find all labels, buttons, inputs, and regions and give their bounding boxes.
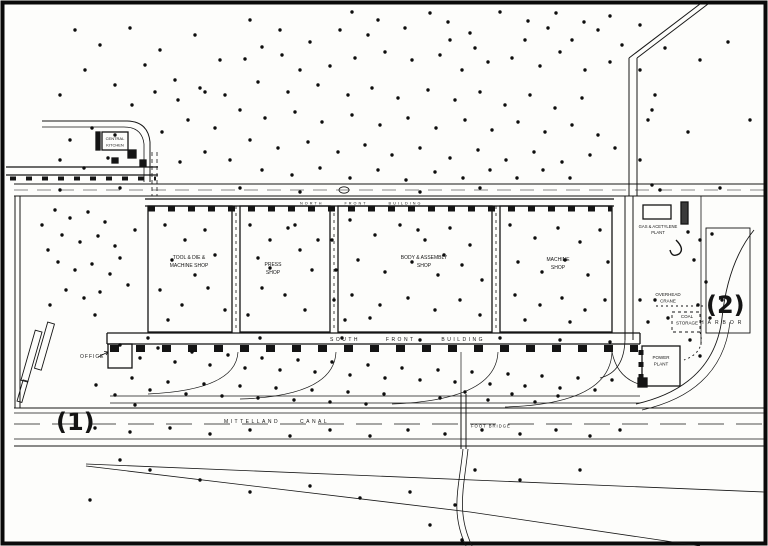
- annotation-marker-2: (2): [706, 291, 745, 319]
- svg-text:SHOP: SHOP: [417, 263, 432, 269]
- svg-text:SHOP: SHOP: [266, 270, 281, 276]
- svg-text:MACHINE SHOP: MACHINE SHOP: [170, 263, 209, 269]
- svg-text:CRANE: CRANE: [660, 299, 676, 304]
- annotation-marker-1: (1): [56, 408, 95, 436]
- label-north-front: NORTH FRONT BUILDING: [300, 202, 422, 206]
- label-foot-bridge: FOOT BRIDGE: [471, 424, 511, 429]
- label-central-kitchen: CENTRAL: [106, 136, 125, 141]
- svg-text:PLANT: PLANT: [654, 362, 669, 367]
- label-harbor: HARBOR: [700, 320, 745, 326]
- label-body-assembly-shop: BODY & ASSEMBLY: [401, 255, 448, 261]
- site-plan-svg: CENTRAL KITCHEN NORTH FRONT BUILDING TOO…: [0, 0, 768, 546]
- svg-text:KITCHEN: KITCHEN: [106, 143, 124, 148]
- label-gas-plant: GAS & ACETYLENE: [639, 224, 678, 229]
- label-office: OFFICE: [80, 354, 104, 360]
- label-tool-die-shop: TOOL & DIE &: [173, 255, 206, 261]
- label-coal-storage: COAL: [681, 314, 694, 319]
- bomb-plot-map: CENTRAL KITCHEN NORTH FRONT BUILDING TOO…: [0, 0, 768, 546]
- label-south-front: SOUTH FRONT BUILDING: [330, 337, 485, 343]
- svg-text:PLANT: PLANT: [651, 230, 665, 235]
- label-machine-shop: MACHINE: [546, 257, 570, 263]
- svg-text:STORAGE: STORAGE: [676, 321, 698, 326]
- label-canal: MITTELLAND CANAL: [224, 419, 329, 425]
- label-power-plant: POWER: [652, 355, 670, 360]
- svg-text:SHOP: SHOP: [551, 265, 566, 271]
- label-overhead-crane: OVERHEAD: [655, 292, 681, 297]
- label-press-shop: PRESS: [265, 262, 283, 268]
